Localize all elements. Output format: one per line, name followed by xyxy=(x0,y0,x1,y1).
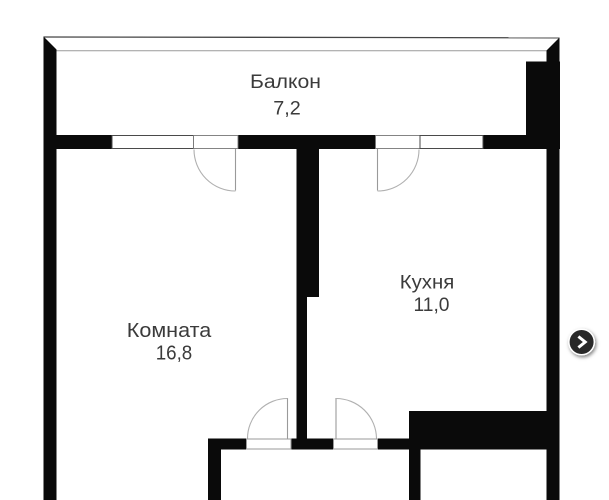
svg-text:7,2: 7,2 xyxy=(273,99,301,120)
svg-text:16,8: 16,8 xyxy=(156,343,193,365)
svg-text:Балкон: Балкон xyxy=(250,72,321,93)
svg-text:11,0: 11,0 xyxy=(414,294,450,316)
svg-text:Кухня: Кухня xyxy=(400,272,455,294)
svg-text:Комната: Комната xyxy=(127,320,212,342)
